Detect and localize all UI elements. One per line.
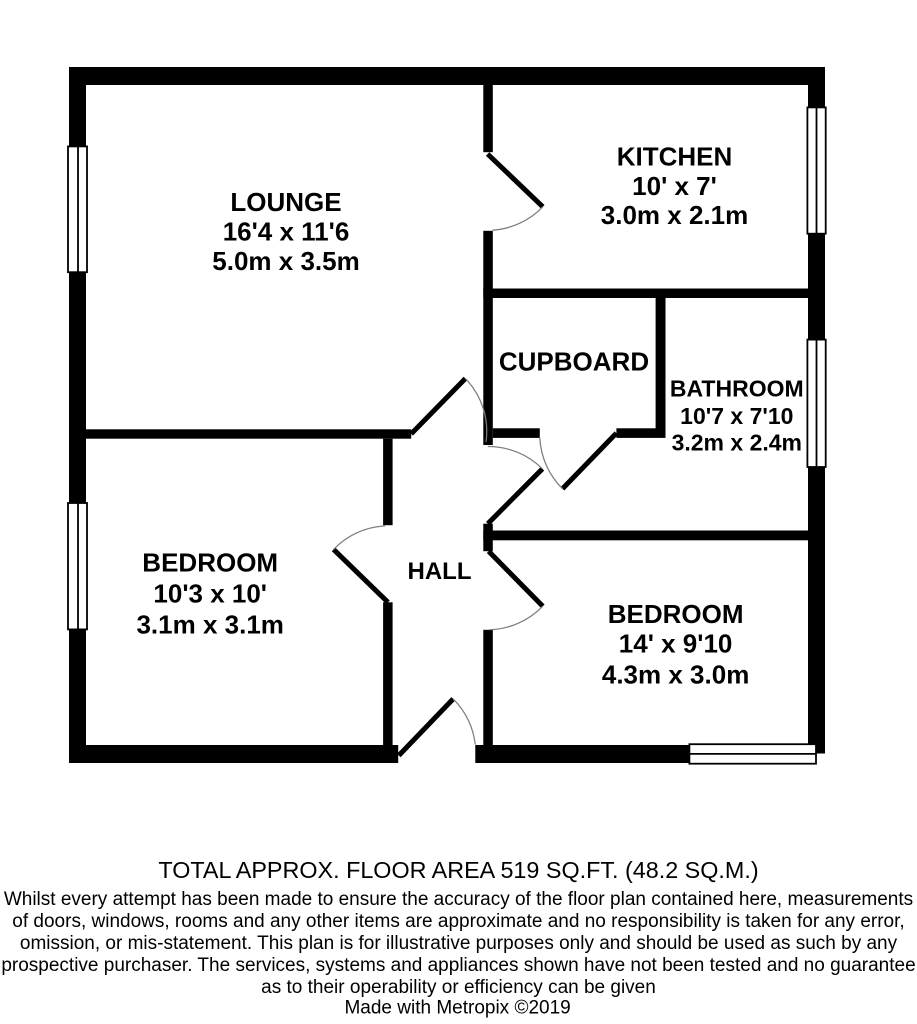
svg-text:KITCHEN: KITCHEN (617, 142, 733, 172)
svg-text:3.0m x 2.1m: 3.0m x 2.1m (601, 200, 748, 230)
svg-text:3.1m x 3.1m: 3.1m x 3.1m (136, 610, 283, 640)
svg-text:BATHROOM: BATHROOM (670, 375, 804, 401)
svg-text:5.0m x 3.5m: 5.0m x 3.5m (212, 246, 359, 276)
svg-text:HALL: HALL (408, 558, 472, 585)
svg-text:TOTAL APPROX. FLOOR AREA 519 S: TOTAL APPROX. FLOOR AREA 519 SQ.FT. (48.… (158, 857, 758, 883)
svg-text:Made with Metropix ©2019: Made with Metropix ©2019 (344, 997, 570, 1018)
svg-text:10'3 x 10': 10'3 x 10' (153, 579, 267, 609)
svg-text:Whilst every attempt has been: Whilst every attempt has been made to en… (4, 889, 913, 910)
svg-text:as to their operability or eff: as to their operability or efficiency ca… (261, 977, 656, 998)
svg-text:LOUNGE: LOUNGE (230, 187, 341, 217)
svg-text:BEDROOM: BEDROOM (608, 599, 744, 629)
svg-text:16'4 x 11'6: 16'4 x 11'6 (223, 217, 350, 247)
svg-text:3.2m x 2.4m: 3.2m x 2.4m (672, 430, 802, 456)
svg-text:4.3m x 3.0m: 4.3m x 3.0m (602, 660, 749, 690)
svg-text:CUPBOARD: CUPBOARD (499, 347, 649, 377)
svg-text:10' x 7': 10' x 7' (632, 171, 717, 201)
svg-text:BEDROOM: BEDROOM (142, 548, 278, 578)
svg-text:omission, or mis-statement. Th: omission, or mis-statement. This plan is… (20, 933, 898, 954)
svg-text:prospective purchaser. The ser: prospective purchaser. The services, sys… (1, 955, 915, 976)
svg-text:of doors, windows, rooms and a: of doors, windows, rooms and any other i… (12, 911, 904, 932)
svg-text:14' x 9'10: 14' x 9'10 (619, 629, 733, 659)
svg-text:10'7 x 7'10: 10'7 x 7'10 (680, 403, 793, 429)
